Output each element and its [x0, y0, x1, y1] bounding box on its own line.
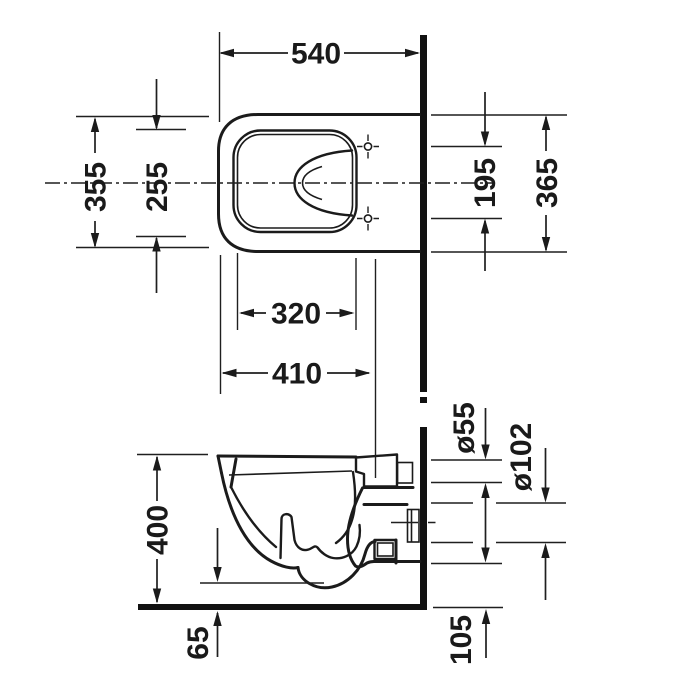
dimension-410: 410: [222, 358, 371, 391]
fixing-hole-marker: [357, 135, 379, 159]
wall-upper-segment: [420, 35, 427, 392]
dim-label-front-to-fixing: 410: [272, 358, 322, 391]
side-front-outer: [222, 473, 299, 568]
dim-label-rim-height: 400: [142, 505, 175, 555]
wall-break-dash: [420, 397, 427, 403]
dimension-320: 320: [239, 298, 355, 331]
side-inner-front-wall: [231, 487, 276, 547]
fixing-hole-marker: [357, 207, 379, 231]
toilet-dimension-drawing: 540 355 255 195 365 320 41: [0, 0, 700, 700]
lower-mounting-bracket: [375, 540, 397, 559]
dim-label-underside-clearance: 65: [182, 626, 215, 659]
dim-label-flush-inlet-diameter: ø55: [448, 402, 481, 454]
dim-label-overall-width: 355: [80, 162, 113, 212]
dimension-195: 195: [469, 92, 502, 271]
toilet-side-view: [218, 455, 436, 588]
dim-label-outlet-diameter: ø102: [505, 423, 538, 491]
side-rim-top: [218, 456, 356, 457]
flush-inlet-connector: [398, 463, 413, 484]
dimension-540: 540: [219, 38, 420, 71]
technical-drawing-canvas: 540 355 255 195 365 320 41: [0, 0, 700, 700]
dim-label-inner-bowl-width: 255: [141, 162, 174, 212]
wall-line: [420, 35, 427, 610]
plan-extension-lines: [76, 32, 567, 478]
side-front-nose: [218, 456, 236, 487]
floor-line: [138, 604, 427, 610]
side-extension-lines: [137, 455, 566, 608]
dim-label-inner-bowl-length: 320: [271, 298, 321, 331]
dimension-355: 355: [80, 117, 113, 248]
dimension-400: 400: [142, 456, 175, 604]
dim-label-outlet-support-height: 105: [445, 615, 478, 665]
outlet-pipe: [408, 510, 420, 543]
dimension-255: 255: [141, 79, 174, 293]
dim-label-fixing-hole-spacing: 195: [469, 158, 502, 208]
upper-mounting-bracket: [356, 455, 397, 487]
side-rim-lower: [229, 471, 352, 475]
dim-label-overall-depth: 540: [291, 38, 341, 71]
dimension-105: 105: [445, 609, 490, 665]
dimension-365: 365: [531, 115, 564, 252]
side-bowl-back-wall: [336, 472, 355, 543]
dimension-outlet-diameter: ø102: [505, 423, 550, 600]
wall-lower-segment: [420, 427, 427, 610]
dim-label-rear-width: 365: [531, 158, 564, 208]
dimension-65: 65: [182, 528, 222, 660]
